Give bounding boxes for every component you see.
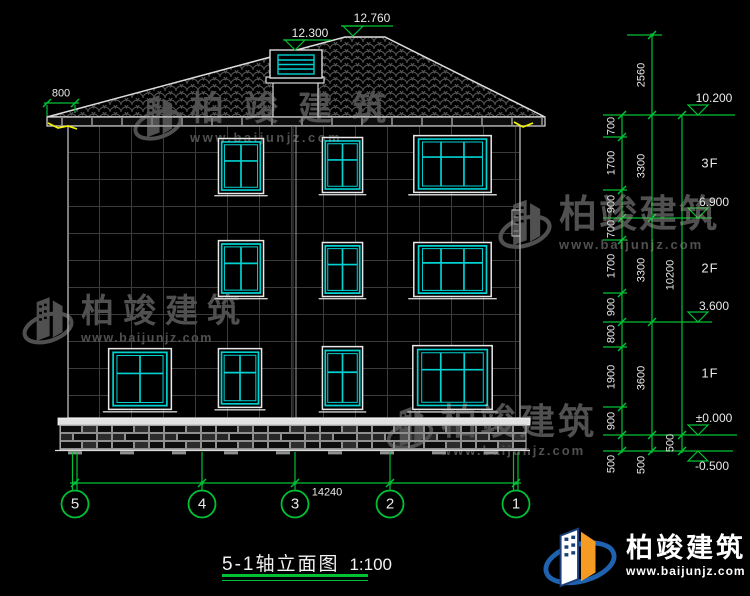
level-ridge-label: 12.760	[354, 12, 391, 24]
level-label: -0.500	[695, 460, 729, 472]
level-chimney-label: 12.300	[292, 27, 329, 39]
watermark-logo-icon	[498, 196, 552, 254]
dim-label: 1700	[607, 254, 618, 278]
axis-number: 3	[291, 497, 299, 512]
window	[319, 347, 367, 412]
dim-label: 10200	[666, 260, 677, 291]
site-logo-icon	[540, 524, 620, 588]
dim-label: 900	[607, 298, 618, 316]
watermark-logo-icon	[133, 92, 183, 145]
watermark-brand: 柏竣建筑	[559, 196, 719, 234]
level-label: 3.600	[699, 300, 729, 312]
watermark-logo-icon	[386, 404, 434, 454]
window	[214, 349, 265, 410]
watermark-brand: 柏竣建筑	[81, 294, 249, 327]
level-ridge	[341, 26, 393, 36]
dim-label: 3300	[637, 258, 648, 282]
axis-number: 5	[71, 497, 79, 512]
site-logo: 柏竣建筑 www.baijunjz.com	[540, 524, 746, 588]
dim-label: 800	[607, 325, 618, 343]
watermark: 柏竣建筑 www.baijunjz.com	[498, 196, 719, 254]
site-logo-url: www.baijunjz.com	[626, 564, 746, 578]
watermark-brand: 柏竣建筑	[190, 92, 406, 126]
dim-label: 1900	[607, 365, 618, 389]
window	[319, 138, 367, 195]
watermark-brand: 柏竣建筑	[441, 404, 597, 440]
window	[408, 243, 496, 299]
watermark-url: www.baijunjz.com	[559, 237, 719, 252]
window	[408, 136, 496, 195]
watermark-url: www.baijunjz.com	[190, 130, 406, 145]
dim-label: 500	[666, 434, 677, 452]
watermark: 柏竣建筑 www.baijunjz.com	[22, 294, 249, 349]
dim-total-width-label: 14240	[312, 488, 343, 499]
floor-tag: 3F	[701, 157, 718, 170]
dim-label: 700	[607, 117, 618, 135]
dim-label: 1700	[607, 151, 618, 175]
window	[319, 243, 367, 299]
drawing-title: 5-1轴立面图 1:100	[222, 549, 372, 576]
axis-number: 4	[198, 497, 206, 512]
dim-overhang-label: 800	[52, 89, 70, 100]
floor-tag: 2F	[701, 262, 718, 275]
floor-tag: 1F	[701, 367, 718, 380]
level-label: ±0.000	[696, 412, 733, 424]
level-label: 10.200	[696, 92, 733, 104]
dim-label: 500	[637, 456, 648, 474]
dim-label: 900	[607, 412, 618, 430]
axis-number: 2	[386, 497, 394, 512]
watermark-logo-icon	[22, 294, 74, 349]
window	[103, 349, 177, 412]
dim-label: 2560	[637, 63, 648, 87]
dim-label: 500	[607, 455, 618, 473]
title-underline-thin	[222, 580, 368, 581]
title-scale: 1:100	[349, 555, 392, 575]
window	[214, 241, 267, 299]
dim-label: 3300	[637, 154, 648, 178]
watermark: 柏竣建筑 www.baijunjz.com	[133, 92, 406, 145]
watermark: 柏竣建筑 www.baijunjz.com	[386, 404, 597, 458]
title-text: 5-1轴立面图	[222, 549, 339, 576]
watermark-url: www.baijunjz.com	[441, 443, 597, 458]
watermark-url: www.baijunjz.com	[81, 331, 249, 345]
site-logo-brand: 柏竣建筑	[626, 534, 746, 562]
dim-label: 3600	[637, 366, 648, 390]
elevation-drawing-canvas: 800 12.300 12.760 14240 700 1700 900 700…	[0, 0, 750, 596]
title-underline-thick	[222, 574, 368, 577]
axis-number: 1	[512, 497, 520, 512]
window	[214, 139, 267, 196]
